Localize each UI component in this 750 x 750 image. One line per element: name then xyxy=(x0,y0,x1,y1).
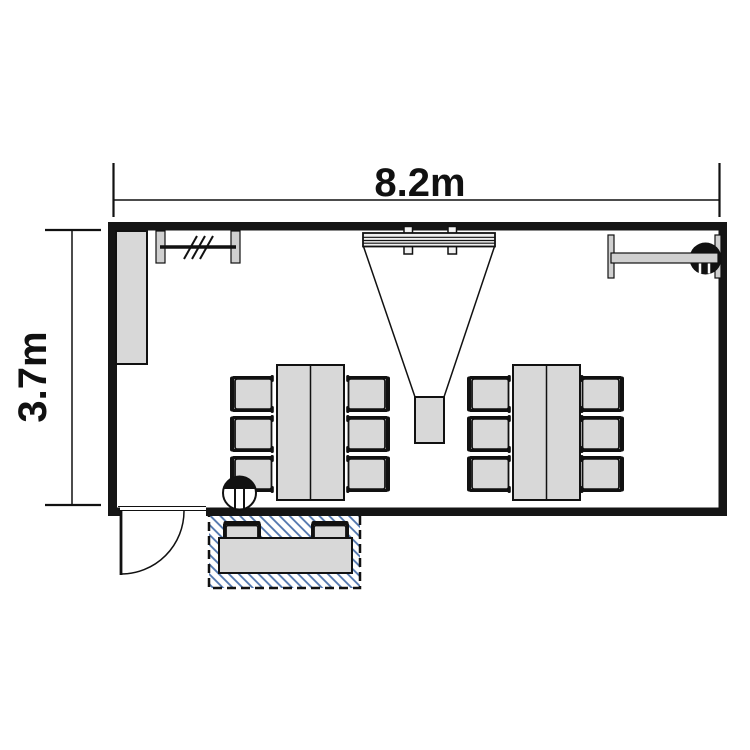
chair xyxy=(580,375,624,413)
chair xyxy=(230,375,274,413)
chair xyxy=(467,375,511,413)
chair xyxy=(346,455,390,493)
cabinet xyxy=(116,231,147,364)
chair xyxy=(580,415,624,453)
entry-bench-table xyxy=(219,538,352,573)
dimension-height-label: 3.7m xyxy=(11,331,55,422)
chair xyxy=(230,415,274,453)
chair xyxy=(346,415,390,453)
projector xyxy=(415,397,444,443)
floor-fixture-icon xyxy=(223,477,256,510)
meeting-table-right-group xyxy=(467,365,624,500)
meeting-table-left-group xyxy=(230,365,390,500)
dimension-width-label: 8.2m xyxy=(374,161,465,205)
chair xyxy=(346,375,390,413)
chair xyxy=(467,415,511,453)
floor-plan-canvas: 8.2m 3.7m xyxy=(0,0,750,750)
chair xyxy=(580,455,624,493)
floor-plan: 8.2m 3.7m xyxy=(0,0,750,750)
chair xyxy=(467,455,511,493)
rail-bar xyxy=(611,253,718,263)
projection-screen xyxy=(363,233,495,247)
